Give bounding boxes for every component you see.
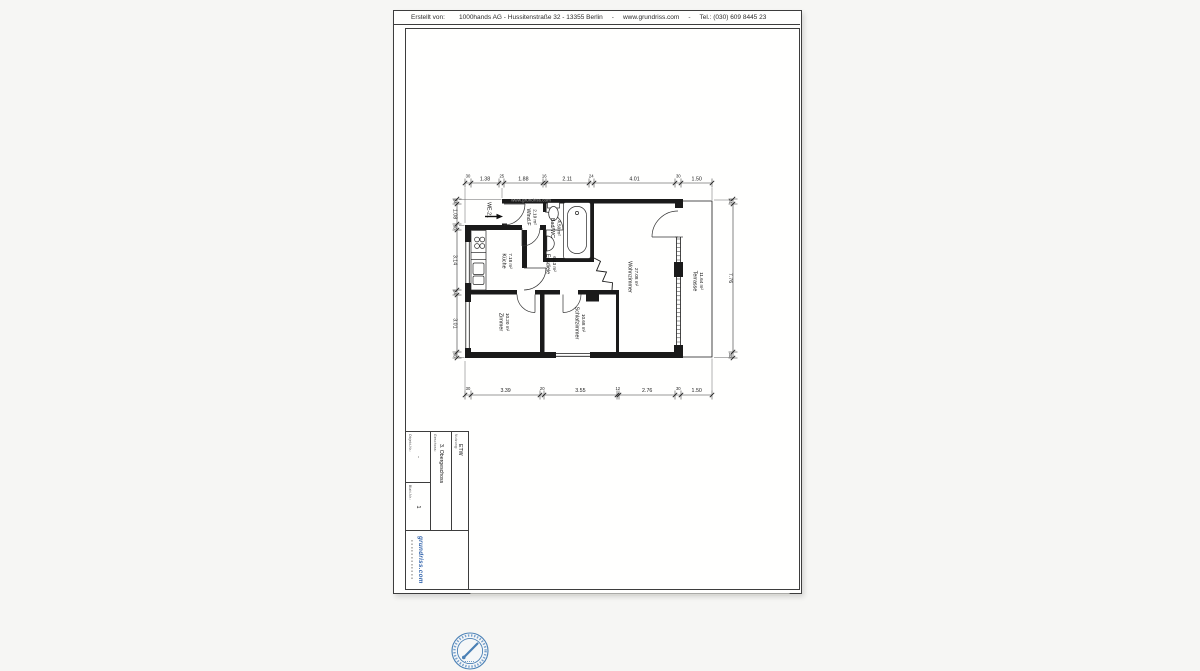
bath-sink <box>547 236 554 251</box>
watermark: www.grundriss.com <box>511 198 551 203</box>
entry-door <box>504 204 525 225</box>
room-area-bad: 4.50 m² <box>557 220 562 236</box>
dim-bottom-7: 1.50 <box>692 388 702 394</box>
room-name-schlafzimmer: Schlafzimmer <box>574 307 580 340</box>
dim-top-3: 1.88 <box>518 176 528 182</box>
room-area-terrasse: 11.64 m² <box>699 272 704 290</box>
room-area-windfang: 2.19 m² <box>533 209 538 225</box>
room-name-essdiele: Essdiele <box>545 254 551 274</box>
room-name-bad: Bad/WC <box>549 218 555 238</box>
terrace-door <box>652 211 678 237</box>
bathtub-drain <box>575 211 578 214</box>
dim-left-1: 1.08 <box>452 209 458 219</box>
room-name-windfang: Wind.F <box>525 208 531 226</box>
dim-top-2: 25 <box>499 174 504 179</box>
dim-bottom-1: 3.39 <box>500 388 510 394</box>
room-area-essdiele: 6.43 m² <box>552 256 557 272</box>
room-area-zimmer: 10.20 m² <box>505 313 510 332</box>
kitchen-door <box>524 268 546 290</box>
dim-left-3: 3.14 <box>452 255 458 265</box>
room-area-wohnzimmer: 27.08 m² <box>634 268 639 287</box>
hob-burner <box>475 237 480 242</box>
room-name-terrasse: Terrasse <box>692 271 698 292</box>
kitchen-sink <box>473 276 484 285</box>
dim-left-6: 30 <box>453 353 458 358</box>
room-door <box>517 295 535 313</box>
dim-left-5: 3.01 <box>452 318 458 328</box>
dim-right-2: 30 <box>728 353 733 358</box>
hob-burner <box>480 237 485 242</box>
dim-bottom-0: 30 <box>466 386 471 391</box>
room-name-zimmer: Zimmer <box>498 313 504 331</box>
room-area-schlafzimmer: 10.68 m² <box>581 314 586 333</box>
kitchen-sink <box>473 263 484 275</box>
hob-burner <box>480 244 485 249</box>
dim-bottom-4: 12 <box>615 386 620 391</box>
dim-top-4: 16 <box>542 174 547 179</box>
dim-left-4: 24 <box>453 290 458 295</box>
folding-partition <box>594 258 613 290</box>
company-seal-icon <box>450 631 490 671</box>
unit-label: WE-21 <box>486 202 492 218</box>
dim-bottom-3: 3.55 <box>575 388 585 394</box>
dim-bottom-2: 20 <box>540 386 545 391</box>
room-labels: Wind.F 2.19 m² Bad/WC 4.50 m² Küche 7.18… <box>498 208 705 339</box>
dim-top-7: 4.01 <box>629 176 639 182</box>
floor-plan-drawing: 30 1.38 25 1.88 16 2.11 24 4.01 30 1.50 … <box>0 0 1200 600</box>
room-area-kueche: 7.18 m² <box>508 253 513 269</box>
dim-top-0: 30 <box>466 174 471 179</box>
dim-right-0: 24 <box>728 199 733 204</box>
dim-top-1: 1.38 <box>480 176 490 182</box>
room-name-wohnzimmer: Wohnzimmer <box>627 261 633 293</box>
hob-burner <box>475 244 480 249</box>
room-name-kueche: Küche <box>501 253 507 268</box>
dim-top-6: 24 <box>589 174 594 179</box>
dim-top-8: 30 <box>676 174 681 179</box>
dim-right-1: 7.76 <box>727 273 733 283</box>
dim-bottom-6: 30 <box>676 386 681 391</box>
dim-bottom-5: 2.76 <box>642 388 652 394</box>
dim-top-5: 2.11 <box>562 176 572 182</box>
dim-left-0: 24 <box>453 199 458 204</box>
dim-top-9: 1.50 <box>692 176 702 182</box>
dim-left-2: 30 <box>453 225 458 230</box>
